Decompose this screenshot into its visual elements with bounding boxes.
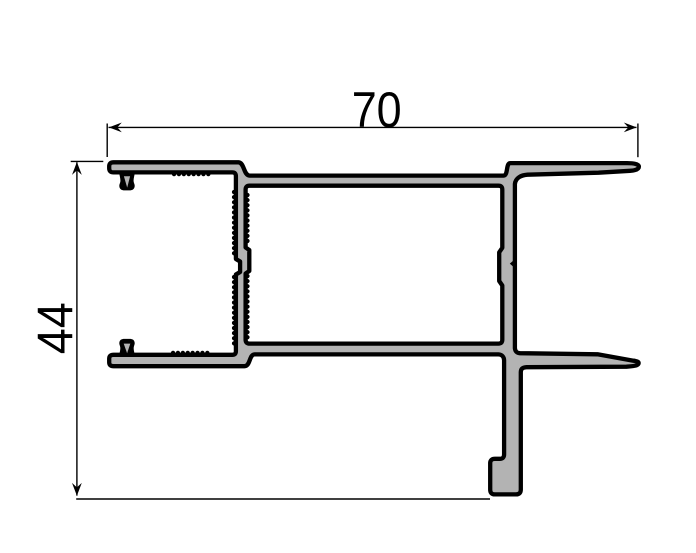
svg-text:44: 44 [28, 302, 84, 354]
svg-text:70: 70 [352, 82, 402, 138]
